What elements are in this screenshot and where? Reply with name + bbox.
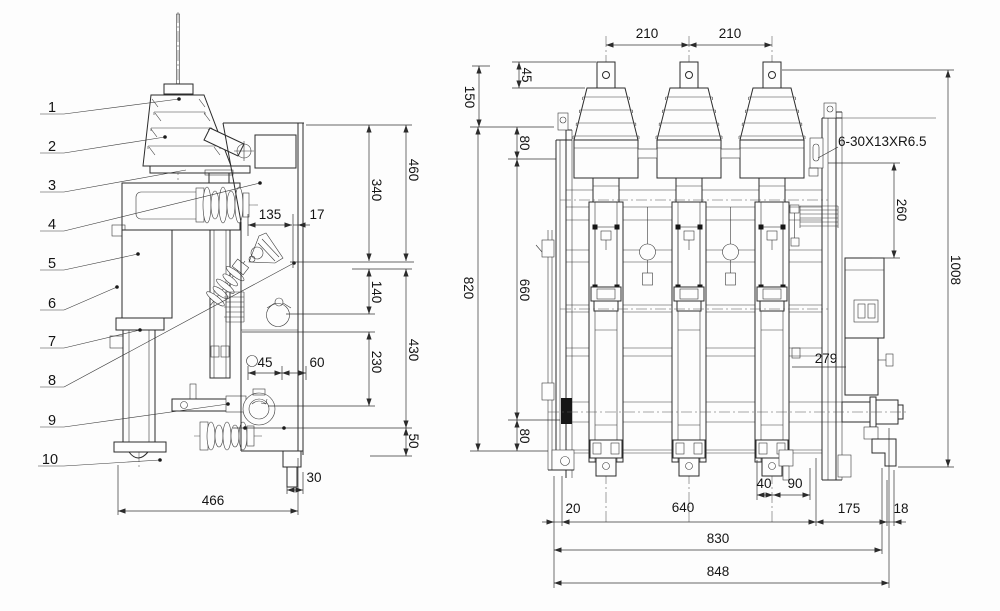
dim-30: 30	[306, 470, 321, 485]
left-plate	[536, 113, 574, 478]
drawing-canvas: 1 2 3 4 5 6 7	[0, 0, 1000, 611]
linkage-1	[640, 207, 656, 285]
dim-90: 90	[787, 476, 802, 491]
dim-135: 135	[259, 207, 282, 222]
dim-140: 140	[369, 281, 384, 304]
pole-2	[656, 36, 722, 525]
side-cam-lever	[249, 233, 283, 263]
side-bottom-bracket	[172, 384, 246, 412]
callout-label: 7	[48, 334, 56, 350]
callout-6: 6	[40, 285, 119, 312]
upper-operating-hole	[267, 298, 292, 327]
dim-848: 848	[707, 564, 730, 579]
small-hole	[247, 356, 258, 367]
dim-230: 230	[369, 351, 384, 374]
technical-drawing: 1 2 3 4 5 6 7	[0, 0, 1000, 611]
dim-279: 279	[815, 351, 838, 366]
dim-820: 820	[461, 277, 476, 300]
callout-label: 2	[48, 139, 56, 155]
side-view: 1 2 3 4 5 6 7	[38, 12, 421, 515]
callout-label: 4	[48, 217, 56, 233]
dim-60: 60	[309, 355, 324, 370]
dim-1008: 1008	[948, 255, 963, 285]
dim-210-a: 210	[636, 26, 659, 41]
pin-detail	[790, 205, 800, 358]
side-view-geometry	[110, 12, 304, 487]
callout-label: 1	[48, 100, 56, 116]
callout-label: 3	[48, 178, 56, 194]
shaft-bearing-left	[561, 398, 572, 424]
fin-stack	[800, 206, 838, 228]
dim-50: 50	[406, 433, 421, 448]
pole-1	[573, 36, 639, 525]
callout-label: 5	[48, 256, 56, 272]
callout-label: 8	[48, 373, 56, 389]
dim-340: 340	[369, 179, 384, 202]
earth-bolt	[779, 450, 793, 466]
callout-label: 6	[48, 296, 56, 312]
callout-label: 10	[42, 452, 58, 468]
rotary-interlock	[243, 389, 275, 425]
dim-660: 660	[517, 279, 532, 302]
side-insulator-lower	[200, 422, 254, 450]
dim-430: 430	[406, 339, 421, 362]
nameplate	[255, 135, 296, 168]
dim-45: 45	[519, 67, 534, 82]
dim-466: 466	[202, 493, 225, 508]
dim-40: 40	[756, 476, 771, 491]
linkage-2	[723, 207, 739, 285]
dim-210-b: 210	[719, 26, 742, 41]
callout-label: 9	[48, 413, 56, 429]
dim-18: 18	[893, 501, 908, 516]
dim-830: 830	[707, 531, 730, 546]
callout-10: 10	[38, 452, 162, 468]
dim-260: 260	[894, 199, 909, 222]
mechanism	[838, 258, 903, 477]
slot-annotation: 6-30X13XR6.5	[838, 134, 927, 149]
dim-175: 175	[838, 501, 861, 516]
dim-640: 640	[672, 500, 695, 515]
dim-20: 20	[565, 501, 580, 516]
front-view: 210 210 45 150 80 820 660 80	[461, 26, 963, 588]
dim-80-top: 80	[517, 135, 532, 150]
side-pole-cylinder	[110, 230, 172, 458]
dim-17: 17	[309, 207, 324, 222]
dim-45: 45	[257, 355, 272, 370]
dim-460: 460	[406, 159, 421, 182]
mounting-slot	[809, 138, 823, 176]
pole-3	[739, 36, 805, 525]
dim-80-bottom: 80	[517, 428, 532, 443]
dim-150: 150	[462, 86, 477, 109]
front-view-geometry	[536, 36, 936, 525]
